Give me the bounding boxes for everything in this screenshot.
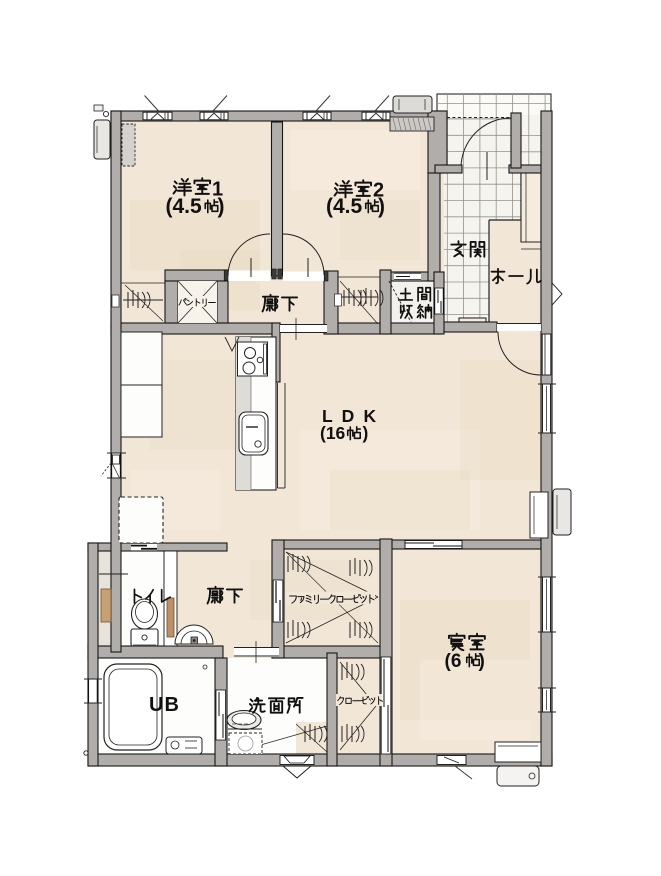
svg-text:(4.5: (4.5: [326, 195, 363, 218]
svg-text:(6: (6: [445, 651, 462, 672]
svg-text:): ): [378, 195, 385, 218]
svg-text:): ): [218, 195, 225, 218]
svg-text:(4.5: (4.5: [166, 195, 203, 218]
svg-text:(16: (16: [320, 423, 346, 443]
svg-text:UB: UB: [149, 694, 180, 716]
svg-text:): ): [479, 651, 485, 672]
svg-text:): ): [363, 423, 369, 443]
